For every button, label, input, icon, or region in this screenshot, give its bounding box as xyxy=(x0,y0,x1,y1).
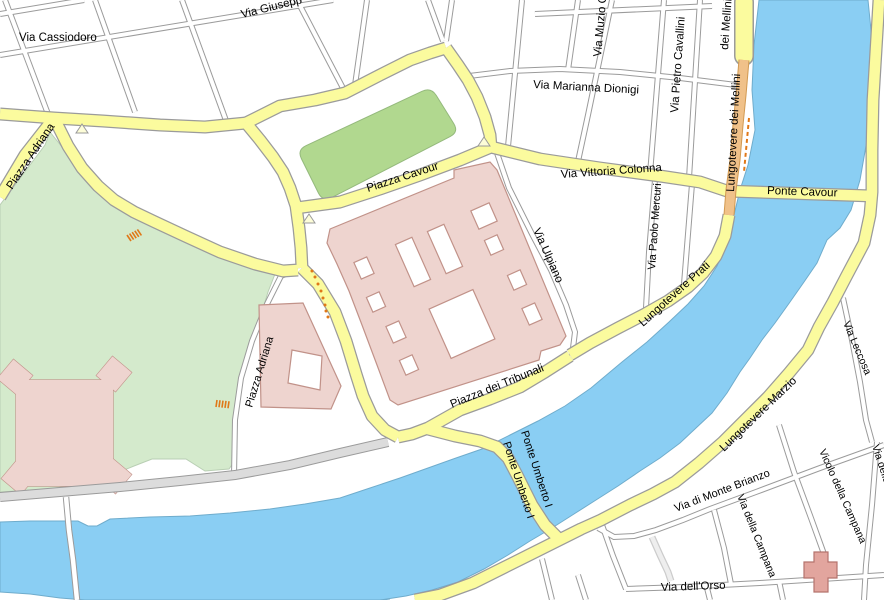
svg-text:Ponte Cavour: Ponte Cavour xyxy=(767,185,838,199)
svg-text:Via Cassiodoro: Via Cassiodoro xyxy=(19,32,97,44)
svg-text:Via dell'Orso: Via dell'Orso xyxy=(661,580,726,594)
